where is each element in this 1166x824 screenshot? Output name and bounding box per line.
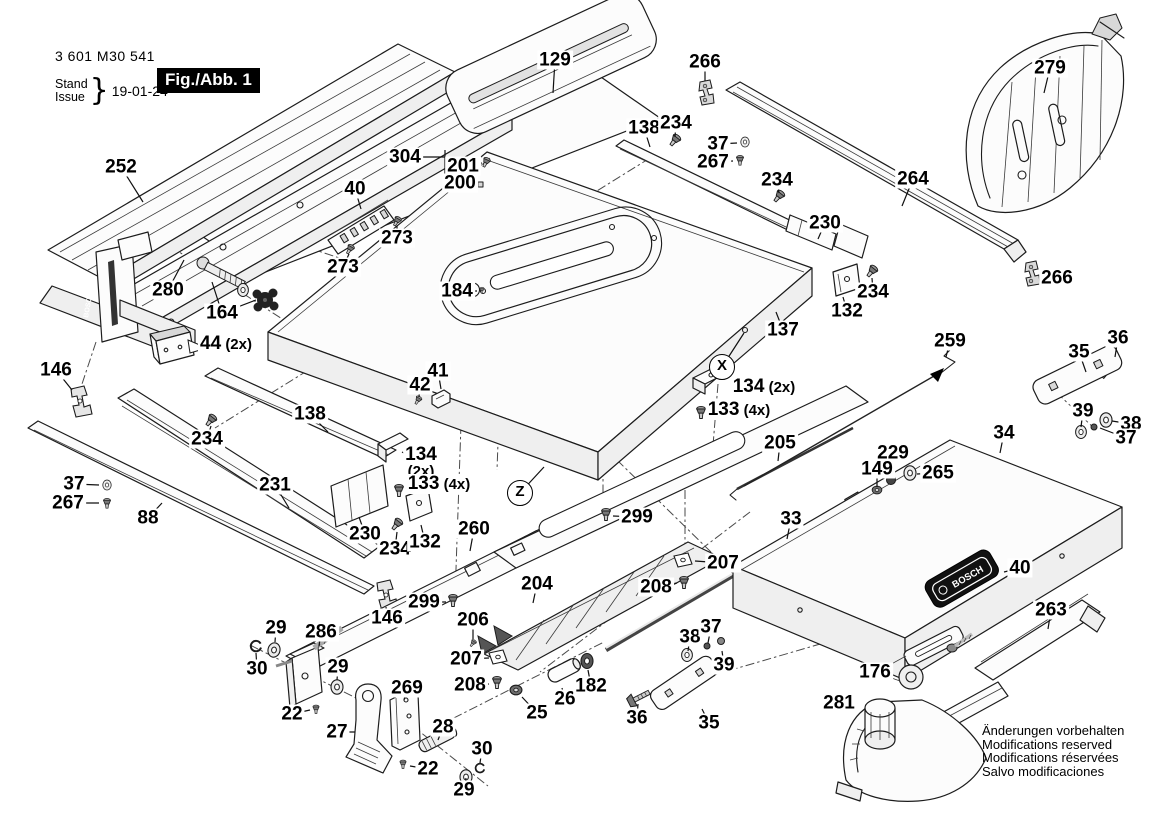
part-callout-231: 231 bbox=[257, 476, 293, 495]
part-callout-29: 29 bbox=[325, 658, 350, 677]
part-callout-29: 29 bbox=[451, 781, 476, 800]
part-callout-182: 182 bbox=[573, 677, 609, 696]
part-callout-137: 137 bbox=[765, 321, 801, 340]
part-callout-30: 30 bbox=[469, 740, 494, 759]
detail-reference-Z: Z bbox=[507, 480, 533, 506]
part-number: 3 601 M30 541 bbox=[55, 48, 168, 64]
part-callout-149: 149 bbox=[859, 460, 895, 479]
part-callout-27: 27 bbox=[324, 723, 349, 742]
clip-146-left bbox=[71, 386, 92, 417]
part-callout-281: 281 bbox=[821, 694, 857, 713]
part-callout-234: 234 bbox=[189, 430, 225, 449]
title-block: 3 601 M30 541 Stand Issue } 19-01-24 bbox=[55, 48, 168, 108]
part-callout-207: 207 bbox=[705, 554, 741, 573]
part-callout-164: 164 bbox=[204, 304, 240, 323]
part-callout-28: 28 bbox=[430, 718, 455, 737]
part-callout-264: 264 bbox=[895, 170, 931, 189]
part-callout-265: 265 bbox=[920, 464, 956, 483]
part-callout-146: 146 bbox=[369, 609, 405, 628]
part-callout-208: 208 bbox=[638, 578, 674, 597]
part-callout-273: 273 bbox=[325, 258, 361, 277]
part-callout-263: 263 bbox=[1033, 601, 1069, 620]
revision-note-line: Salvo modificaciones bbox=[982, 765, 1124, 779]
stand-label: Stand bbox=[55, 78, 88, 91]
blade-guard-279 bbox=[966, 14, 1124, 212]
parts-diagram-page: BOSCH bbox=[0, 0, 1166, 824]
part-callout-260: 260 bbox=[456, 520, 492, 539]
part-callout-35: 35 bbox=[696, 714, 721, 733]
part-callout-269: 269 bbox=[389, 679, 425, 698]
part-callout-286: 286 bbox=[303, 623, 339, 642]
part-callout-132: 132 bbox=[829, 302, 865, 321]
issue-label: Issue bbox=[55, 91, 88, 104]
part-callout-208: 208 bbox=[452, 676, 488, 695]
revision-note-line: Änderungen vorbehalten bbox=[982, 724, 1124, 738]
part-callout-206: 206 bbox=[455, 611, 491, 630]
issue-row: Stand Issue } 19-01-24 bbox=[55, 73, 168, 108]
part-callout-304: 304 bbox=[387, 148, 423, 167]
part-callout-176: 176 bbox=[857, 663, 893, 682]
part-callout-266: 266 bbox=[1039, 269, 1075, 288]
part-callout-138: 138 bbox=[626, 119, 662, 138]
part-callout-266: 266 bbox=[687, 53, 723, 72]
part-callout-184: 184 bbox=[439, 282, 475, 301]
part-callout-25: 25 bbox=[524, 704, 549, 723]
part-callout-36: 36 bbox=[1105, 329, 1130, 348]
part-callout-280: 280 bbox=[150, 281, 186, 300]
part-callout-132: 132 bbox=[407, 533, 443, 552]
pivot-bracket-27 bbox=[346, 684, 392, 773]
part-callout-133: 133 (4x) bbox=[706, 400, 773, 420]
part-callout-205: 205 bbox=[762, 434, 798, 453]
revision-note-line: Modifications réservées bbox=[982, 751, 1124, 765]
part-callout-37: 37 bbox=[698, 618, 723, 637]
part-callout-273: 273 bbox=[379, 229, 415, 248]
part-callout-146: 146 bbox=[38, 361, 74, 380]
plate-35-bottom bbox=[648, 654, 720, 713]
brace-glyph: } bbox=[90, 73, 109, 108]
part-callout-134: 134 (2x) bbox=[731, 377, 798, 397]
part-callout-30: 30 bbox=[244, 660, 269, 679]
part-callout-207: 207 bbox=[448, 650, 484, 669]
part-callout-230: 230 bbox=[807, 214, 843, 233]
revision-notes: Änderungen vorbehaltenModifications rese… bbox=[982, 724, 1124, 778]
part-callout-234: 234 bbox=[855, 283, 891, 302]
part-callout-40: 40 bbox=[342, 180, 367, 199]
part-callout-22: 22 bbox=[415, 760, 440, 779]
part-callout-29: 29 bbox=[263, 619, 288, 638]
part-callout-299: 299 bbox=[406, 593, 442, 612]
part-callout-44: 44 (2x) bbox=[198, 334, 254, 354]
part-callout-37: 37 bbox=[61, 475, 86, 494]
part-callout-40: 40 bbox=[1007, 559, 1032, 578]
part-callout-35: 35 bbox=[1066, 343, 1091, 362]
part-callout-279: 279 bbox=[1032, 59, 1068, 78]
clip-266-right bbox=[1025, 261, 1040, 286]
figure-label: Fig./Abb. 1 bbox=[157, 68, 260, 93]
part-callout-133: 133 (4x) bbox=[406, 474, 473, 494]
part-callout-234: 234 bbox=[658, 114, 694, 133]
part-callout-234: 234 bbox=[759, 171, 795, 190]
part-callout-34: 34 bbox=[991, 424, 1016, 443]
part-callout-252: 252 bbox=[103, 158, 139, 177]
part-callout-267: 267 bbox=[695, 153, 731, 172]
exploded-view-drawing: BOSCH bbox=[0, 0, 1166, 824]
plate-269 bbox=[390, 690, 420, 750]
detail-reference-X: X bbox=[709, 354, 735, 380]
part-callout-204: 204 bbox=[519, 575, 555, 594]
part-callout-259: 259 bbox=[932, 332, 968, 351]
part-callout-138: 138 bbox=[292, 405, 328, 424]
part-callout-37: 37 bbox=[1113, 429, 1138, 448]
part-callout-33: 33 bbox=[778, 510, 803, 529]
clip-266-top bbox=[699, 80, 714, 105]
part-callout-39: 39 bbox=[1070, 402, 1095, 421]
part-callout-200: 200 bbox=[442, 174, 478, 193]
part-callout-267: 267 bbox=[50, 494, 86, 513]
part-callout-88: 88 bbox=[135, 509, 160, 528]
part-callout-299: 299 bbox=[619, 508, 655, 527]
part-callout-36: 36 bbox=[624, 709, 649, 728]
part-callout-129: 129 bbox=[537, 51, 573, 70]
part-callout-42: 42 bbox=[407, 376, 432, 395]
part-callout-22: 22 bbox=[279, 705, 304, 724]
part-callout-39: 39 bbox=[711, 656, 736, 675]
revision-note-line: Modifications reserved bbox=[982, 738, 1124, 752]
